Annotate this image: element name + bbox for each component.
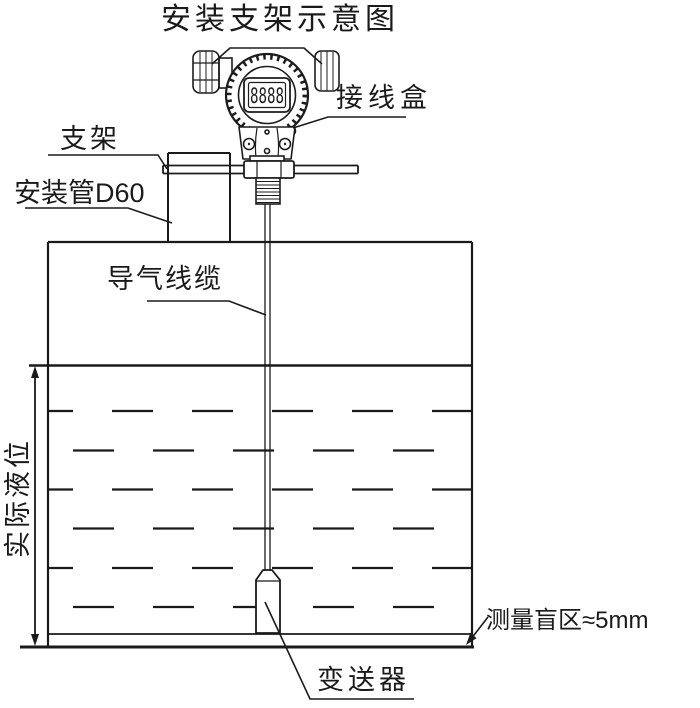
liquid-dashes <box>32 411 471 607</box>
label-blind-zone: 测量盲区≈5mm <box>486 609 649 633</box>
label-air-cable: 导气线缆 <box>107 266 223 293</box>
label-mounting-pipe: 安装管D60 <box>14 180 145 207</box>
threaded-nipple <box>256 178 280 204</box>
label-actual-level: 实际液位 <box>5 428 37 568</box>
leader-mounting-pipe <box>25 208 172 223</box>
lcd-digits: 8888 <box>250 84 284 108</box>
leader-bracket <box>48 155 167 169</box>
leader-junction-box <box>293 117 406 128</box>
tank-outline <box>20 242 474 647</box>
label-transmitter: 变送器 <box>317 667 410 694</box>
probe <box>256 570 280 633</box>
label-junction-box: 接线盒 <box>336 85 432 112</box>
leader-air-cable <box>147 301 266 315</box>
page-title: 安装支架示意图 <box>161 5 399 35</box>
transmitter-head: 8888 <box>193 48 339 204</box>
head-neck <box>239 127 295 159</box>
lcd-display: 8888 <box>244 78 290 112</box>
air-guide-cable <box>265 204 270 571</box>
installation-diagram: 8888 <box>0 0 700 708</box>
label-bracket: 支架 <box>60 126 120 153</box>
hex-nut <box>244 161 294 178</box>
